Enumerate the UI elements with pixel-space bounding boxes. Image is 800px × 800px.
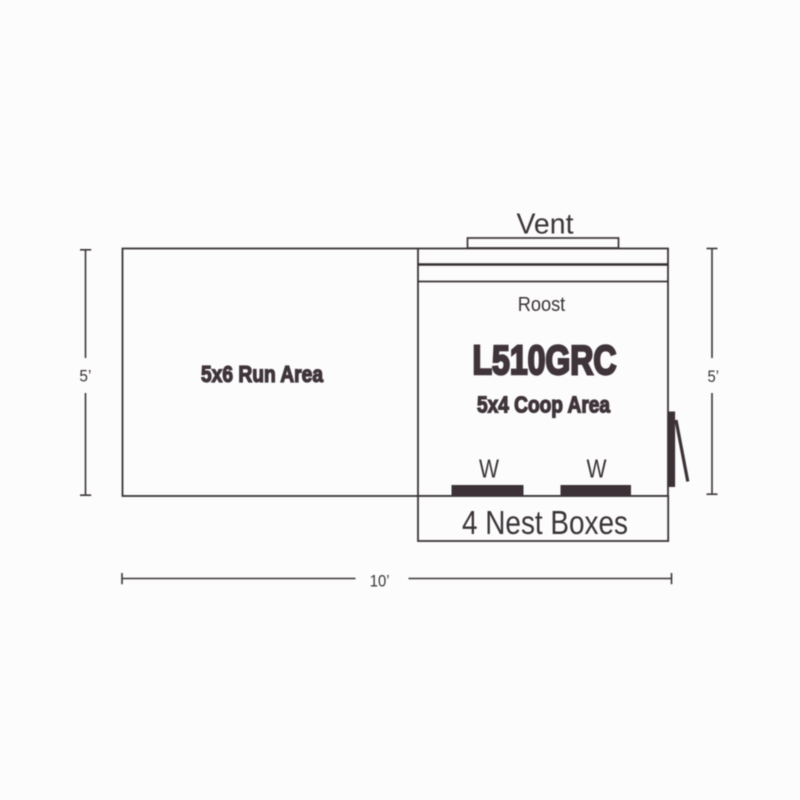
svg-text:Roost: Roost (518, 293, 566, 316)
svg-text:W: W (587, 454, 607, 484)
svg-text:W: W (479, 454, 499, 484)
svg-text:4 Nest Boxes: 4 Nest Boxes (462, 504, 628, 541)
svg-text:10’: 10’ (370, 572, 390, 591)
svg-text:5x4 Coop Area: 5x4 Coop Area (477, 392, 610, 418)
svg-text:Vent: Vent (517, 207, 574, 239)
svg-text:L510GRC: L510GRC (473, 337, 617, 383)
svg-text:5’: 5’ (79, 367, 91, 385)
svg-text:5’: 5’ (708, 368, 720, 386)
svg-text:5x6 Run Area: 5x6 Run Area (201, 361, 323, 387)
